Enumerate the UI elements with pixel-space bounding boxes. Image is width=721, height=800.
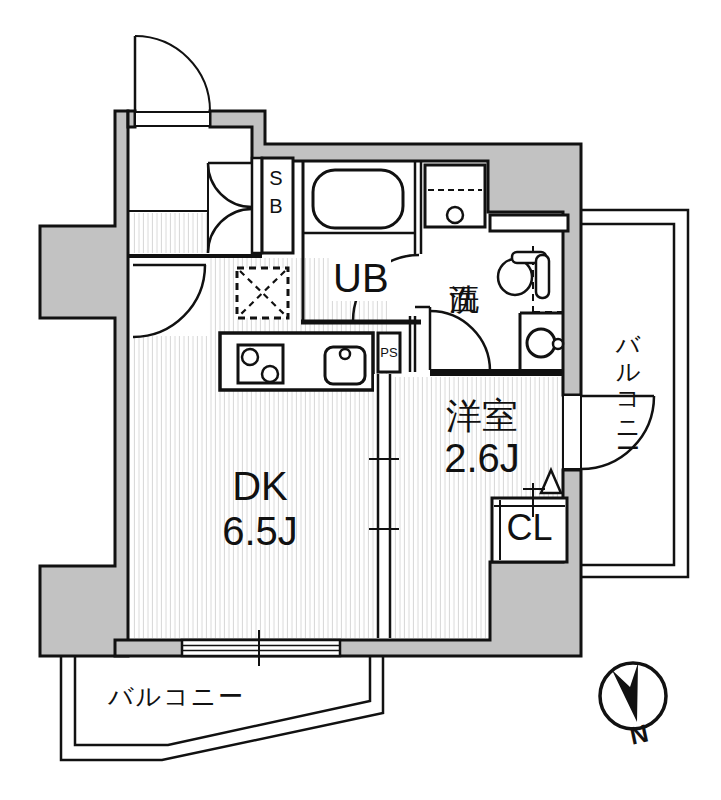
room-label-closet: CL	[492, 508, 567, 548]
washroom-door-arc	[430, 311, 490, 371]
floor-plan: DK 6.5J 洋室 2.6J UB 洗面 CL SB PS バルコニー バルコ…	[0, 0, 721, 800]
entrance-door-opening	[135, 112, 210, 126]
washer-drain	[447, 207, 463, 223]
room-label-unit-bath: UB	[331, 256, 391, 301]
shoe-box-door-arc	[208, 163, 252, 207]
sink-faucet	[340, 349, 350, 359]
wall-top-left-stub	[128, 111, 135, 127]
wall-left	[40, 111, 128, 656]
vanity-faucet	[553, 339, 563, 349]
bathtub	[313, 170, 403, 228]
room-label-dk: DK 6.5J	[178, 464, 342, 554]
room-label-pipe-space: PS	[378, 346, 400, 361]
western-size: 2.6J	[400, 436, 564, 481]
dk-window	[182, 640, 340, 656]
floor-plan-drawing	[0, 0, 721, 800]
room-label-washroom: 洗面	[447, 260, 481, 266]
dk-name: DK	[178, 464, 342, 509]
stove-burner	[242, 349, 258, 365]
entrance-door-arc	[135, 36, 210, 111]
stove-burner	[262, 366, 278, 382]
toilet-bowl	[498, 259, 532, 295]
western-room-north-wall	[430, 369, 563, 376]
toilet-shelf	[490, 215, 568, 231]
shoe-box-door-arc	[208, 209, 252, 253]
entry-hall-floor	[131, 213, 208, 253]
toilet-tank-side	[536, 255, 549, 298]
dk-size: 6.5J	[178, 509, 342, 554]
balcony-door-opening	[563, 395, 581, 469]
room-label-western: 洋室 2.6J	[400, 396, 564, 481]
vanity-bowl	[527, 329, 555, 357]
western-name: 洋室	[400, 396, 564, 436]
room-label-balcony-right: バルコニー	[616, 318, 640, 437]
room-label-shoe-box: SB	[266, 167, 286, 223]
room-label-balcony-bottom: バルコニー	[108, 682, 245, 710]
